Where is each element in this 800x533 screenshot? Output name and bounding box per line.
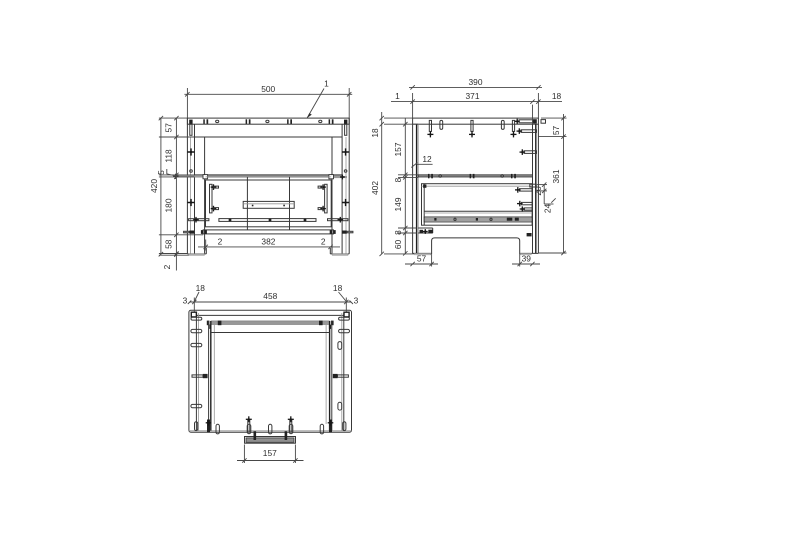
svg-text:3: 3 (183, 296, 188, 306)
svg-text:20: 20 (533, 186, 543, 196)
svg-text:57: 57 (551, 126, 561, 136)
svg-text:402: 402 (370, 181, 380, 195)
svg-text:24: 24 (543, 204, 553, 214)
svg-text:57: 57 (417, 254, 427, 264)
svg-text:361: 361 (551, 169, 561, 183)
svg-text:18: 18 (333, 283, 343, 293)
svg-text:2: 2 (162, 264, 172, 269)
svg-text:1: 1 (324, 79, 329, 89)
svg-text:18: 18 (196, 283, 206, 293)
svg-text:57: 57 (164, 123, 174, 133)
svg-text:2: 2 (321, 236, 326, 246)
svg-text:420: 420 (149, 179, 159, 193)
svg-text:5: 5 (156, 170, 166, 175)
svg-text:2: 2 (218, 236, 223, 246)
svg-text:18: 18 (370, 128, 380, 138)
svg-text:8: 8 (393, 230, 403, 235)
svg-text:180: 180 (164, 198, 174, 212)
svg-text:12: 12 (422, 154, 432, 164)
svg-text:371: 371 (466, 91, 480, 101)
svg-text:157: 157 (393, 142, 403, 156)
svg-text:39: 39 (522, 254, 532, 264)
svg-text:1: 1 (395, 91, 400, 101)
svg-text:149: 149 (393, 197, 403, 211)
svg-text:58: 58 (164, 239, 174, 249)
svg-text:18: 18 (552, 91, 562, 101)
svg-text:118: 118 (164, 149, 174, 163)
svg-text:157: 157 (263, 448, 277, 458)
svg-text:382: 382 (261, 236, 275, 246)
svg-text:60: 60 (393, 240, 403, 250)
svg-text:458: 458 (263, 291, 277, 301)
svg-text:8: 8 (393, 177, 403, 182)
svg-text:3: 3 (354, 296, 359, 306)
svg-text:390: 390 (469, 77, 483, 87)
svg-text:500: 500 (261, 84, 275, 94)
